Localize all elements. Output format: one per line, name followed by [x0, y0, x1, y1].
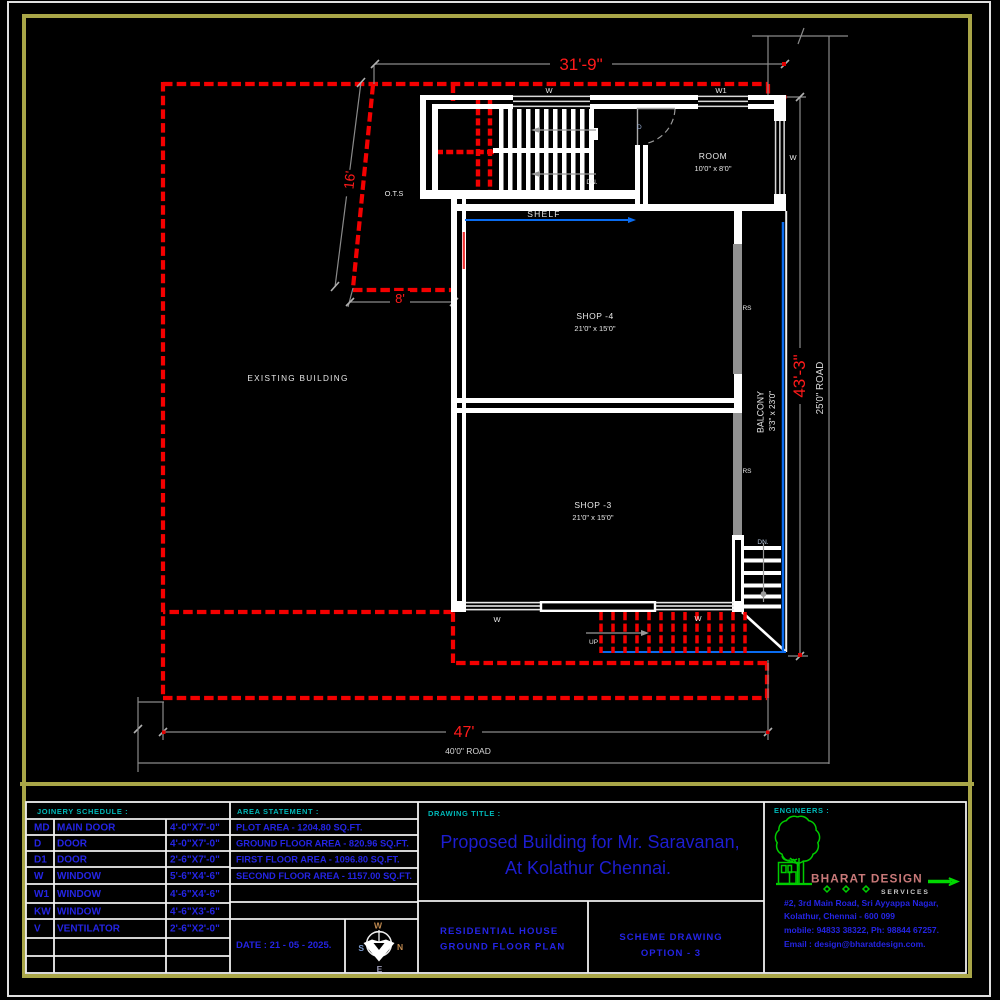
svg-text:21'0" x 15'0": 21'0" x 15'0" — [574, 324, 615, 333]
svg-text:Proposed Building for Mr. Sara: Proposed Building for Mr. Saravanan, — [440, 832, 739, 852]
svg-text:O.T.S: O.T.S — [385, 189, 404, 198]
svg-text:16': 16' — [340, 170, 358, 190]
svg-text:DOOR: DOOR — [57, 855, 88, 866]
svg-text:BALCONY: BALCONY — [756, 391, 766, 433]
svg-text:RESIDENTIAL HOUSE: RESIDENTIAL HOUSE — [440, 926, 558, 937]
svg-text:FIRST FLOOR AREA - 1096.80 SQ.: FIRST FLOOR AREA - 1096.80 SQ.FT. — [236, 855, 400, 865]
svg-text:DRAWING TITLE :: DRAWING TITLE : — [428, 809, 501, 818]
svg-text:W: W — [374, 921, 383, 931]
svg-text:DOOR: DOOR — [57, 839, 88, 850]
svg-text:UP: UP — [589, 639, 598, 646]
svg-text:4'-0"X7'-0": 4'-0"X7'-0" — [170, 823, 220, 834]
svg-text:3'3" x 23'0": 3'3" x 23'0" — [768, 391, 777, 431]
svg-text:Kolathur, Chennai - 600 099: Kolathur, Chennai - 600 099 — [784, 911, 895, 921]
svg-text:WINDOW: WINDOW — [57, 871, 101, 882]
svg-text:PLOT AREA - 1204.80 SQ.FT.: PLOT AREA - 1204.80 SQ.FT. — [236, 823, 362, 833]
svg-text:D1: D1 — [34, 855, 47, 866]
svg-text:W1: W1 — [34, 889, 49, 900]
svg-text:D: D — [637, 124, 642, 131]
svg-text:W: W — [789, 153, 797, 162]
svg-text:W: W — [493, 615, 501, 624]
svg-text:W: W — [694, 614, 702, 623]
svg-text:SHOP -4: SHOP -4 — [576, 311, 613, 321]
svg-text:V: V — [34, 924, 41, 935]
svg-text:Email : design@bharatdesign.co: Email : design@bharatdesign.com. — [784, 939, 925, 949]
svg-text:W: W — [545, 86, 553, 95]
svg-text:SERVICES: SERVICES — [881, 889, 930, 896]
svg-text:OPTION - 3: OPTION - 3 — [641, 948, 701, 959]
svg-text:47': 47' — [454, 724, 475, 741]
svg-text:JOINERY SCHEDULE :: JOINERY SCHEDULE : — [37, 807, 128, 816]
svg-text:SECOND FLOOR AREA - 1157.00 SQ: SECOND FLOOR AREA - 1157.00 SQ.FT. — [236, 871, 412, 881]
svg-text:ENGINEERS :: ENGINEERS : — [774, 806, 829, 815]
svg-text:25'0" ROAD: 25'0" ROAD — [815, 362, 826, 415]
svg-text:mobile: 94833 38322, Ph: 98844: mobile: 94833 38322, Ph: 98844 67257. — [784, 925, 939, 935]
svg-text:4'-0"X7'-0": 4'-0"X7'-0" — [170, 839, 220, 850]
svg-text:W1: W1 — [715, 86, 726, 95]
svg-text:N: N — [397, 942, 403, 952]
svg-text:10'0" x 8'0": 10'0" x 8'0" — [695, 164, 732, 173]
svg-text:2'-6"X7'-0": 2'-6"X7'-0" — [170, 855, 220, 866]
svg-text:MAIN DOOR: MAIN DOOR — [57, 823, 116, 834]
svg-text:ROOM: ROOM — [699, 151, 727, 161]
svg-text:AREA STATEMENT :: AREA STATEMENT : — [237, 807, 319, 816]
svg-text:4'-6"X3'-6": 4'-6"X3'-6" — [170, 907, 220, 918]
svg-text:At Kolathur Chennai.: At Kolathur Chennai. — [505, 858, 671, 878]
svg-text:VENTILATOR: VENTILATOR — [57, 924, 121, 935]
svg-text:SHELF: SHELF — [527, 209, 560, 219]
svg-text:GROUND FLOOR AREA - 820.96 SQ.: GROUND FLOOR AREA - 820.96 SQ.FT. — [236, 839, 409, 849]
svg-text:GROUND FLOOR PLAN: GROUND FLOOR PLAN — [440, 942, 565, 953]
svg-text:DN.: DN. — [586, 179, 597, 186]
svg-text:5'-6"X4'-6": 5'-6"X4'-6" — [170, 871, 220, 882]
svg-text:EXISTING BUILDING: EXISTING BUILDING — [247, 374, 348, 383]
svg-text:#2, 3rd Main Road, Sri Ayyappa: #2, 3rd Main Road, Sri Ayyappa Nagar, — [784, 898, 938, 908]
svg-text:SHOP -3: SHOP -3 — [574, 500, 611, 510]
svg-text:21'0" x 15'0": 21'0" x 15'0" — [572, 513, 613, 522]
svg-text:D: D — [34, 839, 41, 850]
svg-text:RS: RS — [742, 468, 752, 475]
svg-text:S: S — [358, 943, 364, 953]
svg-text:WINDOW: WINDOW — [57, 889, 101, 900]
svg-text:SCHEME DRAWING: SCHEME DRAWING — [619, 932, 722, 943]
svg-text:KW: KW — [34, 907, 51, 918]
svg-text:4'-6"X4'-6": 4'-6"X4'-6" — [170, 889, 220, 900]
svg-text:2'-6"X2'-0": 2'-6"X2'-0" — [170, 924, 220, 935]
svg-text:43'-3": 43'-3" — [790, 354, 809, 397]
svg-text:RS: RS — [742, 305, 752, 312]
svg-text:E: E — [377, 964, 383, 974]
svg-text:8': 8' — [395, 291, 405, 306]
svg-text:40'0" ROAD: 40'0" ROAD — [445, 746, 491, 756]
svg-text:31'-9": 31'-9" — [559, 55, 602, 74]
svg-text:DN.: DN. — [757, 539, 768, 546]
svg-text:DATE : 21 - 05 - 2025.: DATE : 21 - 05 - 2025. — [236, 940, 331, 951]
svg-text:MD: MD — [34, 823, 50, 834]
svg-text:W: W — [34, 871, 44, 882]
svg-text:BHARAT DESIGN: BHARAT DESIGN — [811, 872, 923, 886]
svg-text:WINDOW: WINDOW — [57, 907, 101, 918]
